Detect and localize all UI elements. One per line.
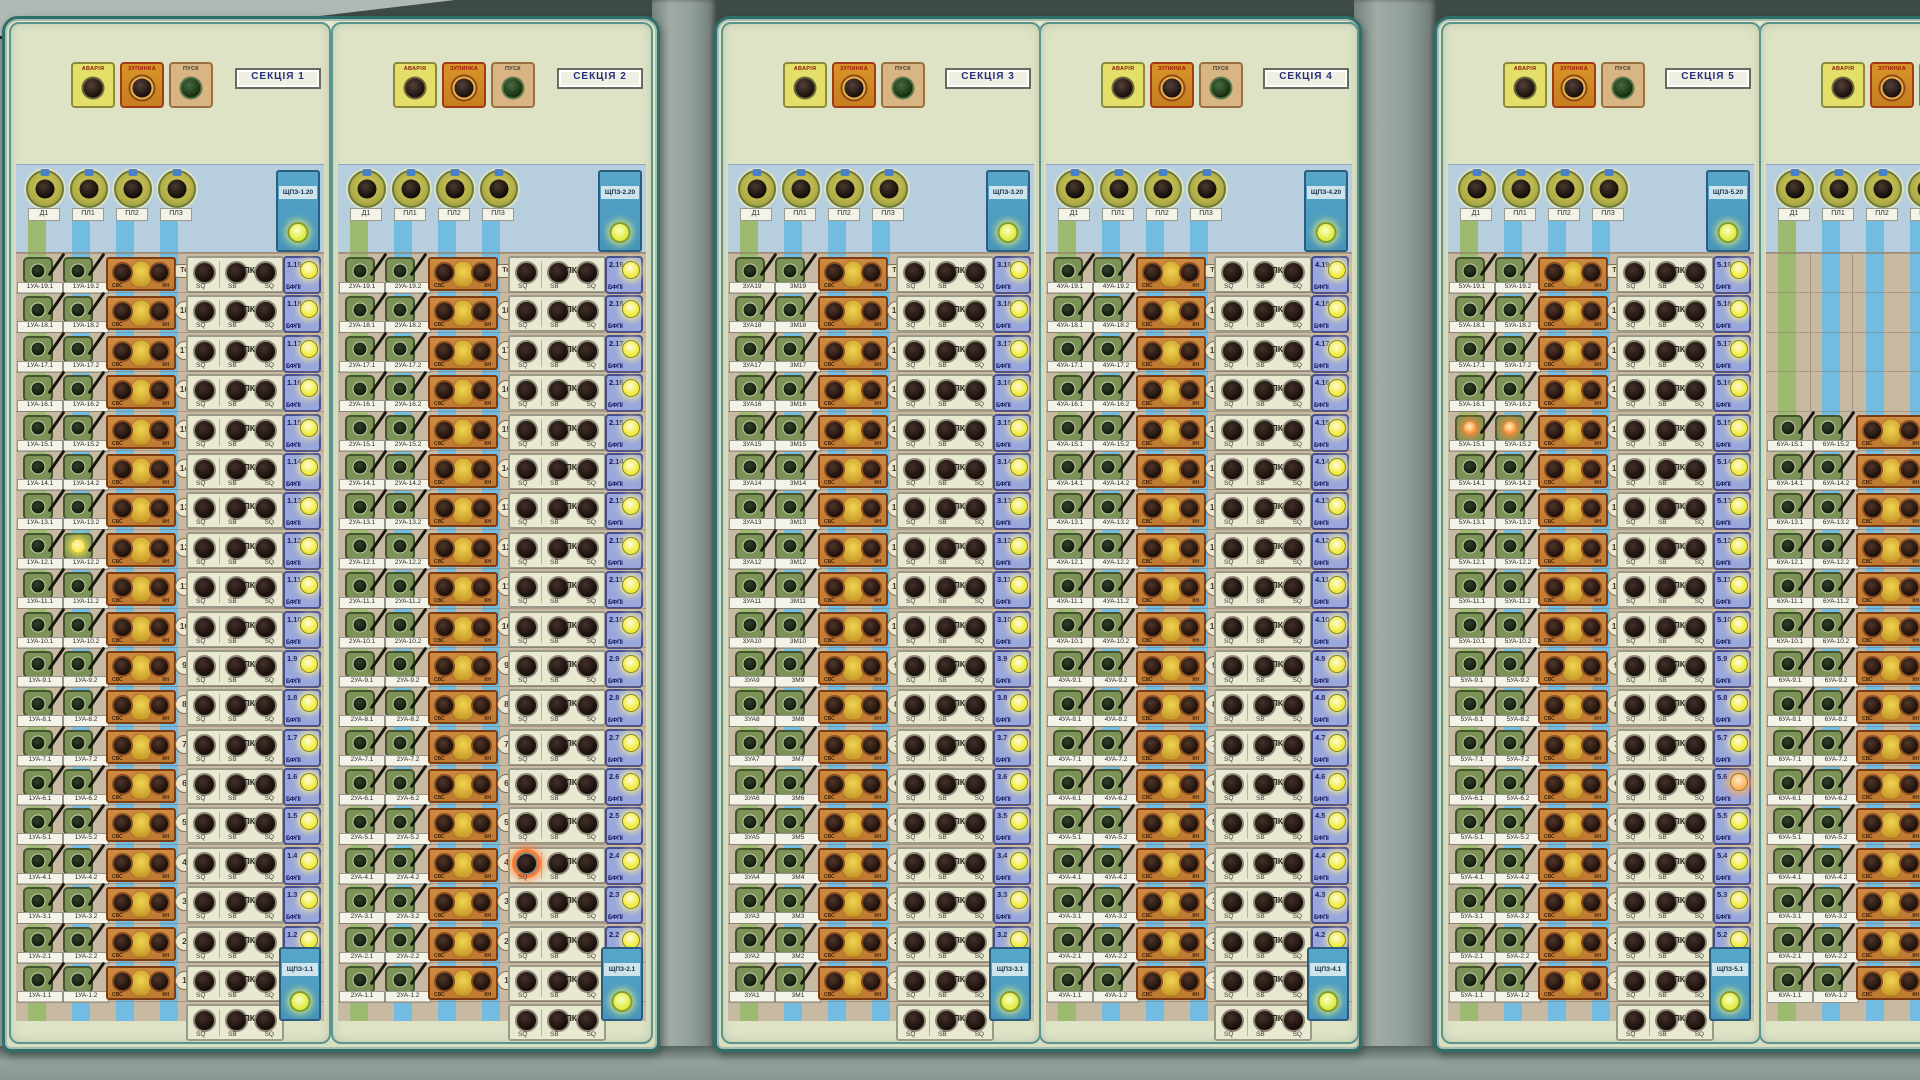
- breaker-button-right[interactable]: [1179, 538, 1200, 559]
- sq1-button[interactable]: [1221, 300, 1244, 323]
- breaker-button-right[interactable]: [149, 420, 170, 441]
- sq1-button[interactable]: [1221, 1009, 1244, 1032]
- sq1-button[interactable]: [1623, 458, 1646, 481]
- sq1-button[interactable]: [903, 852, 926, 875]
- sq2-button[interactable]: [254, 340, 277, 363]
- sq1-button[interactable]: [193, 773, 216, 796]
- breaker-button-right[interactable]: [861, 656, 882, 677]
- breaker-button-right[interactable]: [861, 420, 882, 441]
- breaker-button-right[interactable]: [149, 262, 170, 283]
- breaker-button-left[interactable]: [1142, 813, 1163, 834]
- sq1-button[interactable]: [515, 694, 538, 717]
- sq2-button[interactable]: [576, 655, 599, 678]
- sq2-button[interactable]: [254, 379, 277, 402]
- sq2-button[interactable]: [964, 300, 987, 323]
- sq1-button[interactable]: [1623, 537, 1646, 560]
- alarm-button[interactable]: АВАРІЯ: [393, 62, 437, 108]
- sq1-button[interactable]: [1623, 812, 1646, 835]
- breaker-button-left[interactable]: [1142, 538, 1163, 559]
- breaker-button-right[interactable]: [471, 932, 492, 953]
- sq1-button[interactable]: [1221, 340, 1244, 363]
- breaker-button-right[interactable]: [1581, 932, 1602, 953]
- alarm-button[interactable]: АВАРІЯ: [71, 62, 115, 108]
- sq1-button[interactable]: [193, 300, 216, 323]
- sq2-button[interactable]: [964, 812, 987, 835]
- breaker-button-left[interactable]: [1544, 617, 1565, 638]
- breaker-button-left[interactable]: [112, 892, 133, 913]
- sq1-button[interactable]: [193, 1009, 216, 1032]
- breaker-button-left[interactable]: [824, 932, 845, 953]
- sq2-button[interactable]: [576, 812, 599, 835]
- sq1-button[interactable]: [193, 419, 216, 442]
- breaker-button-right[interactable]: [861, 341, 882, 362]
- sq1-button[interactable]: [1623, 419, 1646, 442]
- sq2-button[interactable]: [1684, 1009, 1707, 1032]
- sq2-button[interactable]: [254, 970, 277, 993]
- sq2-button[interactable]: [964, 773, 987, 796]
- sq1-button[interactable]: [515, 616, 538, 639]
- sq2-button[interactable]: [576, 616, 599, 639]
- breaker-button-right[interactable]: [471, 617, 492, 638]
- breaker-button-right[interactable]: [1899, 892, 1920, 913]
- sq2-button[interactable]: [964, 616, 987, 639]
- breaker-button-right[interactable]: [1899, 735, 1920, 756]
- sq1-button[interactable]: [515, 379, 538, 402]
- breaker-button-left[interactable]: [112, 301, 133, 322]
- breaker-button-right[interactable]: [1899, 853, 1920, 874]
- sq1-button[interactable]: [193, 576, 216, 599]
- breaker-button-right[interactable]: [1179, 695, 1200, 716]
- breaker-button-left[interactable]: [434, 341, 455, 362]
- sq1-button[interactable]: [1221, 812, 1244, 835]
- alarm-button[interactable]: АВАРІЯ: [1503, 62, 1547, 108]
- sq1-button[interactable]: [515, 931, 538, 954]
- sq2-button[interactable]: [254, 616, 277, 639]
- breaker-button-right[interactable]: [471, 853, 492, 874]
- breaker-button-right[interactable]: [471, 420, 492, 441]
- sq2-button[interactable]: [1684, 458, 1707, 481]
- breaker-button-right[interactable]: [1581, 695, 1602, 716]
- breaker-button-left[interactable]: [112, 695, 133, 716]
- sq1-button[interactable]: [1221, 497, 1244, 520]
- alarm-button[interactable]: АВАРІЯ: [1101, 62, 1145, 108]
- stop-button-cap[interactable]: [453, 77, 476, 100]
- breaker-button-left[interactable]: [1544, 301, 1565, 322]
- breaker-button-right[interactable]: [1581, 498, 1602, 519]
- sq2-button[interactable]: [576, 261, 599, 284]
- breaker-button-right[interactable]: [1581, 813, 1602, 834]
- sq2-button[interactable]: [1684, 852, 1707, 875]
- sq1-button[interactable]: [1623, 970, 1646, 993]
- sq1-button[interactable]: [1623, 891, 1646, 914]
- breaker-button-left[interactable]: [434, 262, 455, 283]
- stop-button-cap[interactable]: [843, 77, 866, 100]
- sq2-button[interactable]: [576, 852, 599, 875]
- start-button-cap[interactable]: [502, 77, 525, 100]
- breaker-button-left[interactable]: [112, 617, 133, 638]
- breaker-button-right[interactable]: [149, 774, 170, 795]
- breaker-button-left[interactable]: [434, 459, 455, 480]
- sq1-button[interactable]: [515, 537, 538, 560]
- breaker-button-left[interactable]: [824, 577, 845, 598]
- sq2-button[interactable]: [1282, 497, 1305, 520]
- breaker-button-left[interactable]: [824, 459, 845, 480]
- sq2-button[interactable]: [254, 576, 277, 599]
- sq1-button[interactable]: [903, 970, 926, 993]
- breaker-button-right[interactable]: [1581, 735, 1602, 756]
- stop-button-cap[interactable]: [131, 77, 154, 100]
- breaker-button-left[interactable]: [824, 813, 845, 834]
- breaker-button-right[interactable]: [1899, 971, 1920, 992]
- sq2-button[interactable]: [1282, 379, 1305, 402]
- sq1-button[interactable]: [1221, 694, 1244, 717]
- sq1-button[interactable]: [1623, 576, 1646, 599]
- breaker-button-right[interactable]: [1899, 695, 1920, 716]
- breaker-button-left[interactable]: [434, 498, 455, 519]
- sq2-button[interactable]: [1684, 379, 1707, 402]
- breaker-button-right[interactable]: [471, 380, 492, 401]
- sq1-button[interactable]: [1623, 694, 1646, 717]
- breaker-button-right[interactable]: [1899, 459, 1920, 480]
- breaker-button-left[interactable]: [1544, 853, 1565, 874]
- sq2-button[interactable]: [1684, 419, 1707, 442]
- breaker-button-left[interactable]: [1142, 301, 1163, 322]
- breaker-button-left[interactable]: [112, 813, 133, 834]
- breaker-button-right[interactable]: [1179, 262, 1200, 283]
- sq1-button[interactable]: [903, 616, 926, 639]
- breaker-button-right[interactable]: [861, 617, 882, 638]
- breaker-button-left[interactable]: [434, 932, 455, 953]
- sq2-button[interactable]: [1282, 419, 1305, 442]
- breaker-button-left[interactable]: [112, 577, 133, 598]
- breaker-button-right[interactable]: [149, 656, 170, 677]
- sq2-button[interactable]: [576, 694, 599, 717]
- alarm-button-cap[interactable]: [82, 77, 105, 100]
- breaker-button-right[interactable]: [1581, 301, 1602, 322]
- breaker-button-right[interactable]: [149, 971, 170, 992]
- breaker-button-right[interactable]: [861, 380, 882, 401]
- breaker-button-left[interactable]: [434, 971, 455, 992]
- breaker-button-left[interactable]: [434, 538, 455, 559]
- breaker-button-right[interactable]: [1179, 892, 1200, 913]
- sq1-button[interactable]: [1623, 773, 1646, 796]
- breaker-button-right[interactable]: [471, 971, 492, 992]
- sq1-button[interactable]: [515, 300, 538, 323]
- breaker-button-right[interactable]: [861, 538, 882, 559]
- breaker-button-left[interactable]: [1142, 735, 1163, 756]
- breaker-button-left[interactable]: [1142, 262, 1163, 283]
- breaker-button-left[interactable]: [824, 695, 845, 716]
- breaker-button-right[interactable]: [149, 617, 170, 638]
- breaker-button-right[interactable]: [1899, 774, 1920, 795]
- sq2-button[interactable]: [964, 576, 987, 599]
- sq1-button[interactable]: [193, 891, 216, 914]
- sq2-button[interactable]: [1282, 261, 1305, 284]
- sq2-button[interactable]: [964, 655, 987, 678]
- breaker-button-right[interactable]: [149, 459, 170, 480]
- sq1-button[interactable]: [1221, 734, 1244, 757]
- breaker-button-left[interactable]: [1142, 932, 1163, 953]
- breaker-button-left[interactable]: [1544, 774, 1565, 795]
- breaker-button-left[interactable]: [112, 932, 133, 953]
- breaker-button-right[interactable]: [1899, 813, 1920, 834]
- breaker-button-right[interactable]: [1179, 380, 1200, 401]
- alarm-button[interactable]: АВАРІЯ: [783, 62, 827, 108]
- breaker-button-right[interactable]: [1179, 813, 1200, 834]
- sq2-button[interactable]: [1282, 576, 1305, 599]
- breaker-button-right[interactable]: [149, 577, 170, 598]
- sq2-button[interactable]: [964, 537, 987, 560]
- sq1-button[interactable]: [903, 300, 926, 323]
- sq1-button[interactable]: [515, 655, 538, 678]
- breaker-button-right[interactable]: [1179, 971, 1200, 992]
- sq1-button[interactable]: [1623, 655, 1646, 678]
- breaker-button-left[interactable]: [1544, 459, 1565, 480]
- breaker-button-right[interactable]: [471, 577, 492, 598]
- breaker-button-right[interactable]: [471, 813, 492, 834]
- sq2-button[interactable]: [1282, 458, 1305, 481]
- sq2-button[interactable]: [1282, 694, 1305, 717]
- breaker-button-left[interactable]: [1544, 577, 1565, 598]
- breaker-button-right[interactable]: [1581, 420, 1602, 441]
- sq2-button[interactable]: [254, 458, 277, 481]
- sq1-button[interactable]: [1623, 261, 1646, 284]
- breaker-button-right[interactable]: [861, 932, 882, 953]
- sq2-button[interactable]: [1684, 300, 1707, 323]
- breaker-button-right[interactable]: [1899, 538, 1920, 559]
- sq2-button[interactable]: [576, 734, 599, 757]
- breaker-button-left[interactable]: [1862, 932, 1883, 953]
- sq2-button[interactable]: [576, 458, 599, 481]
- sq2-button[interactable]: [1684, 537, 1707, 560]
- sq1-button[interactable]: [1623, 931, 1646, 954]
- sq1-button[interactable]: [1221, 655, 1244, 678]
- breaker-button-left[interactable]: [112, 380, 133, 401]
- sq2-button[interactable]: [1282, 734, 1305, 757]
- sq2-button[interactable]: [1684, 497, 1707, 520]
- sq1-button[interactable]: [903, 576, 926, 599]
- breaker-button-left[interactable]: [1544, 262, 1565, 283]
- start-button[interactable]: ПУСК: [1199, 62, 1243, 108]
- breaker-button-left[interactable]: [824, 971, 845, 992]
- sq2-button[interactable]: [1282, 616, 1305, 639]
- breaker-button-right[interactable]: [149, 695, 170, 716]
- breaker-button-right[interactable]: [1581, 774, 1602, 795]
- breaker-button-right[interactable]: [861, 498, 882, 519]
- sq2-button[interactable]: [576, 340, 599, 363]
- sq1-button[interactable]: [1221, 576, 1244, 599]
- breaker-button-left[interactable]: [1142, 459, 1163, 480]
- breaker-button-left[interactable]: [824, 892, 845, 913]
- sq1-button[interactable]: [903, 773, 926, 796]
- sq1-button[interactable]: [1221, 616, 1244, 639]
- sq2-button[interactable]: [964, 1009, 987, 1032]
- sq2-button[interactable]: [1684, 694, 1707, 717]
- breaker-button-right[interactable]: [1581, 892, 1602, 913]
- sq1-button[interactable]: [515, 773, 538, 796]
- sq2-button[interactable]: [254, 537, 277, 560]
- sq1-button[interactable]: [193, 616, 216, 639]
- sq2-button[interactable]: [576, 1009, 599, 1032]
- sq2-button[interactable]: [254, 655, 277, 678]
- breaker-button-left[interactable]: [824, 735, 845, 756]
- sq2-button[interactable]: [576, 576, 599, 599]
- breaker-button-left[interactable]: [434, 301, 455, 322]
- breaker-button-left[interactable]: [434, 617, 455, 638]
- sq2-button[interactable]: [1282, 773, 1305, 796]
- sq1-button[interactable]: [1623, 734, 1646, 757]
- breaker-button-left[interactable]: [1862, 498, 1883, 519]
- start-button-cap[interactable]: [1210, 77, 1233, 100]
- stop-button-cap[interactable]: [1161, 77, 1184, 100]
- sq1-button[interactable]: [1623, 497, 1646, 520]
- breaker-button-left[interactable]: [112, 498, 133, 519]
- breaker-button-left[interactable]: [1862, 774, 1883, 795]
- sq2-button[interactable]: [1282, 1009, 1305, 1032]
- sq2-button[interactable]: [254, 497, 277, 520]
- breaker-button-left[interactable]: [1862, 695, 1883, 716]
- breaker-button-left[interactable]: [434, 577, 455, 598]
- sq1-button[interactable]: [1221, 458, 1244, 481]
- alarm-button-cap[interactable]: [404, 77, 427, 100]
- breaker-button-left[interactable]: [824, 853, 845, 874]
- sq2-button[interactable]: [254, 891, 277, 914]
- breaker-button-left[interactable]: [1142, 774, 1163, 795]
- sq1-button[interactable]: [1623, 1009, 1646, 1032]
- sq1-button[interactable]: [1623, 340, 1646, 363]
- breaker-button-right[interactable]: [149, 813, 170, 834]
- breaker-button-right[interactable]: [149, 341, 170, 362]
- sq1-button[interactable]: [903, 497, 926, 520]
- sq1-button[interactable]: [903, 694, 926, 717]
- breaker-button-right[interactable]: [471, 459, 492, 480]
- sq2-button[interactable]: [1282, 891, 1305, 914]
- breaker-button-left[interactable]: [824, 774, 845, 795]
- stop-button[interactable]: ЗУПИНКА: [120, 62, 164, 108]
- sq1-button[interactable]: [193, 340, 216, 363]
- sq1-button[interactable]: [903, 458, 926, 481]
- breaker-button-right[interactable]: [1179, 853, 1200, 874]
- breaker-button-right[interactable]: [471, 498, 492, 519]
- sq1-button[interactable]: [1221, 537, 1244, 560]
- sq1-button[interactable]: [1221, 773, 1244, 796]
- sq2-button[interactable]: [1684, 891, 1707, 914]
- breaker-button-right[interactable]: [1179, 498, 1200, 519]
- breaker-button-left[interactable]: [434, 774, 455, 795]
- stop-button-cap[interactable]: [1563, 77, 1586, 100]
- breaker-button-left[interactable]: [434, 380, 455, 401]
- alarm-button-cap[interactable]: [1514, 77, 1537, 100]
- sq2-button[interactable]: [1684, 340, 1707, 363]
- sq2-button[interactable]: [576, 537, 599, 560]
- sq2-button[interactable]: [964, 694, 987, 717]
- breaker-button-left[interactable]: [824, 420, 845, 441]
- breaker-button-right[interactable]: [1179, 577, 1200, 598]
- sq1-button[interactable]: [903, 734, 926, 757]
- breaker-button-right[interactable]: [1581, 617, 1602, 638]
- breaker-button-left[interactable]: [1142, 341, 1163, 362]
- breaker-button-left[interactable]: [112, 538, 133, 559]
- sq2-button[interactable]: [576, 931, 599, 954]
- sq1-button[interactable]: [1221, 891, 1244, 914]
- sq1-button[interactable]: [193, 970, 216, 993]
- breaker-button-right[interactable]: [861, 695, 882, 716]
- breaker-button-right[interactable]: [1179, 774, 1200, 795]
- breaker-button-right[interactable]: [1179, 459, 1200, 480]
- alarm-button[interactable]: АВАРІЯ: [1821, 62, 1865, 108]
- breaker-button-left[interactable]: [112, 420, 133, 441]
- breaker-button-left[interactable]: [1142, 577, 1163, 598]
- sq1-button[interactable]: [1221, 931, 1244, 954]
- sq1-button[interactable]: [193, 694, 216, 717]
- sq1-button[interactable]: [903, 1009, 926, 1032]
- sq1-button[interactable]: [903, 419, 926, 442]
- breaker-button-right[interactable]: [1899, 420, 1920, 441]
- breaker-button-left[interactable]: [112, 774, 133, 795]
- breaker-button-right[interactable]: [861, 735, 882, 756]
- breaker-button-right[interactable]: [1179, 735, 1200, 756]
- sq1-button[interactable]: [903, 379, 926, 402]
- breaker-button-right[interactable]: [471, 695, 492, 716]
- breaker-button-left[interactable]: [1862, 971, 1883, 992]
- breaker-button-right[interactable]: [471, 656, 492, 677]
- breaker-button-left[interactable]: [824, 538, 845, 559]
- sq1-button[interactable]: [193, 655, 216, 678]
- breaker-button-right[interactable]: [1581, 262, 1602, 283]
- sq2-button[interactable]: [576, 970, 599, 993]
- sq1-button[interactable]: [1221, 419, 1244, 442]
- breaker-button-right[interactable]: [1179, 420, 1200, 441]
- sq1-button[interactable]: [515, 419, 538, 442]
- breaker-button-right[interactable]: [861, 892, 882, 913]
- sq2-button[interactable]: [254, 852, 277, 875]
- breaker-button-right[interactable]: [149, 301, 170, 322]
- sq1-button[interactable]: [193, 497, 216, 520]
- sq1-button[interactable]: [193, 734, 216, 757]
- sq1-button[interactable]: [1623, 300, 1646, 323]
- sq2-button[interactable]: [1684, 773, 1707, 796]
- stop-button[interactable]: ЗУПИНКА: [442, 62, 486, 108]
- breaker-button-left[interactable]: [1862, 813, 1883, 834]
- start-button[interactable]: ПУСК: [169, 62, 213, 108]
- breaker-button-left[interactable]: [1142, 498, 1163, 519]
- sq1-button[interactable]: [193, 812, 216, 835]
- breaker-button-right[interactable]: [1581, 341, 1602, 362]
- sq2-button[interactable]: [964, 970, 987, 993]
- breaker-button-right[interactable]: [861, 813, 882, 834]
- breaker-button-left[interactable]: [1862, 617, 1883, 638]
- breaker-button-left[interactable]: [824, 498, 845, 519]
- stop-button[interactable]: ЗУПИНКА: [832, 62, 876, 108]
- breaker-button-left[interactable]: [1544, 892, 1565, 913]
- sq1-button[interactable]: [515, 970, 538, 993]
- breaker-button-left[interactable]: [1544, 656, 1565, 677]
- breaker-button-right[interactable]: [861, 459, 882, 480]
- sq2-button[interactable]: [964, 340, 987, 363]
- alarm-button-cap[interactable]: [1832, 77, 1855, 100]
- sq1-button[interactable]: [903, 812, 926, 835]
- breaker-button-left[interactable]: [1862, 853, 1883, 874]
- breaker-button-right[interactable]: [1179, 617, 1200, 638]
- sq1-button[interactable]: [903, 891, 926, 914]
- breaker-button-left[interactable]: [1142, 695, 1163, 716]
- sq1-button[interactable]: [1221, 852, 1244, 875]
- breaker-button-left[interactable]: [434, 892, 455, 913]
- start-button[interactable]: ПУСК: [881, 62, 925, 108]
- sq2-button[interactable]: [1684, 616, 1707, 639]
- breaker-button-right[interactable]: [1179, 656, 1200, 677]
- sq2-button[interactable]: [254, 300, 277, 323]
